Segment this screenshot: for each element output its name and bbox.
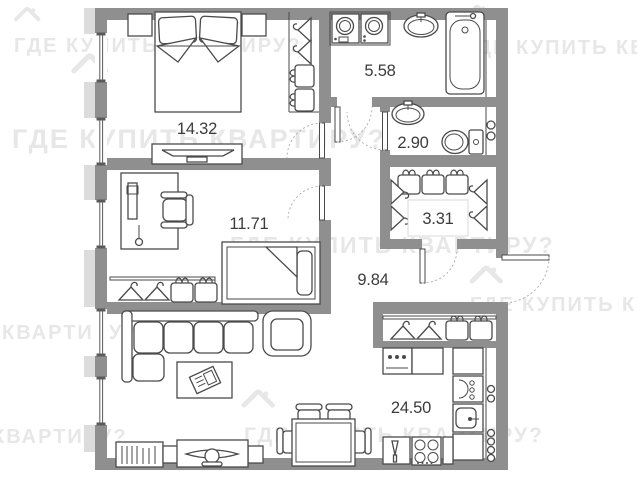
floor-plan: ГДЕ КУПИТЬ КВАРТИРУ? ГДЕ КУПИТЬ КВАРТИРУ…	[0, 0, 637, 480]
wall-kitchen-top	[373, 302, 508, 314]
window	[95, 200, 107, 249]
wall-right-upper	[496, 8, 508, 258]
room-area-label: 2.90	[397, 134, 428, 152]
watermark-text: ГДЕ КУПИТЬ КВАРТИРУ?	[0, 322, 138, 344]
room-area-label: 11.71	[229, 215, 268, 233]
coffee-table	[177, 362, 232, 398]
double-bed	[155, 12, 241, 112]
wall-closet-left	[380, 167, 390, 239]
watermark-text: ГДЕ КУПИТЬ КВАРТИРУ?	[464, 37, 637, 59]
office-chair	[161, 192, 193, 228]
wall-closet-bottom-right	[457, 239, 508, 249]
bookshelf	[116, 442, 163, 467]
tv-stand	[177, 440, 248, 467]
wall-wc-left-stub	[380, 150, 390, 155]
toilet	[442, 130, 483, 154]
bathtub	[446, 12, 484, 94]
watermark-text: ГДЕ КУПИТЬ КВАРТИРУ?	[0, 426, 128, 448]
room-area-label: 14.32	[177, 120, 217, 138]
wall-office-right-lower	[319, 220, 331, 302]
oven-unit	[453, 376, 483, 402]
window	[95, 33, 107, 83]
window	[95, 118, 107, 166]
window	[95, 377, 107, 426]
wall-bath-bottom-left	[319, 97, 337, 107]
window	[95, 309, 107, 357]
room-area-label: 5.58	[364, 62, 395, 80]
cooktop	[412, 437, 441, 465]
wall-kitchen-wardrobe-bottom	[373, 341, 496, 348]
wall-wc-left-stub	[380, 107, 390, 112]
armchair	[263, 311, 311, 356]
wall-bath-bottom-right	[372, 97, 496, 107]
wall-wc-bottom	[380, 155, 496, 167]
side-table	[163, 446, 178, 463]
kitchen-sink	[453, 404, 483, 432]
wall-bedroom-bath	[319, 20, 331, 123]
wall-closet-bottom-left	[380, 239, 422, 249]
room-area-label: 9.84	[357, 271, 388, 289]
wall-office-right-upper	[319, 170, 331, 186]
single-bed	[222, 242, 320, 304]
side-table	[248, 446, 263, 463]
bedroom-tv-console	[152, 144, 242, 164]
cutting-board	[383, 437, 410, 464]
wall-right-lower	[496, 303, 508, 470]
room-area-label: 24.50	[391, 399, 431, 417]
room-hallway: 9.84	[357, 271, 388, 289]
nightstand	[128, 14, 152, 36]
nightstand	[242, 14, 266, 36]
room-area-label: 3.31	[422, 210, 453, 228]
